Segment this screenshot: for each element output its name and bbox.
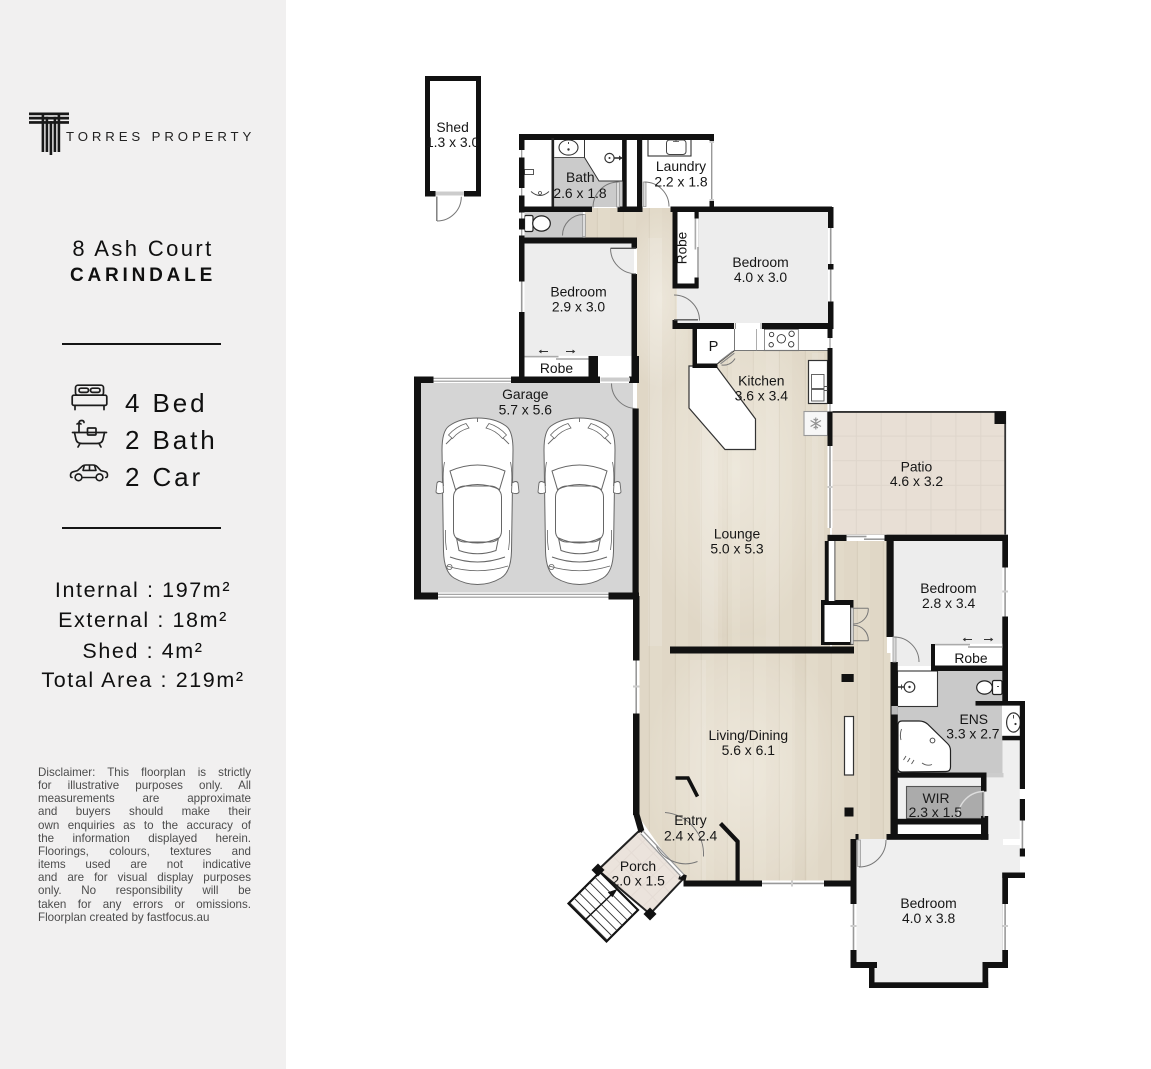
svg-text:Laundry: Laundry — [656, 158, 706, 174]
svg-text:Bedroom: Bedroom — [732, 254, 788, 270]
svg-text:Bedroom: Bedroom — [920, 580, 976, 596]
svg-text:P: P — [709, 339, 719, 355]
svg-text:2.4 x 2.4: 2.4 x 2.4 — [664, 827, 718, 843]
svg-text:Living/Dining: Living/Dining — [709, 727, 789, 743]
svg-text:Shed: Shed — [436, 119, 468, 135]
svg-text:5.7 x 5.6: 5.7 x 5.6 — [499, 402, 553, 418]
svg-text:4.0 x 3.0: 4.0 x 3.0 — [734, 269, 788, 285]
svg-text:2.2 x 1.8: 2.2 x 1.8 — [654, 174, 708, 190]
svg-text:1.3 x 3.0: 1.3 x 3.0 — [426, 134, 480, 150]
svg-text:2.3 x 1.5: 2.3 x 1.5 — [909, 804, 963, 820]
svg-text:3.6 x 3.4: 3.6 x 3.4 — [735, 387, 789, 403]
svg-text:Robe: Robe — [540, 360, 573, 376]
svg-text:5.0 x 5.3: 5.0 x 5.3 — [710, 541, 764, 557]
svg-text:4.6 x 3.2: 4.6 x 3.2 — [890, 473, 944, 489]
svg-text:Patio: Patio — [901, 458, 933, 474]
svg-text:2.9 x 3.0: 2.9 x 3.0 — [552, 299, 606, 315]
svg-text:5.6 x 6.1: 5.6 x 6.1 — [722, 742, 776, 758]
svg-text:Garage: Garage — [502, 386, 549, 402]
svg-text:Robe: Robe — [675, 232, 690, 265]
svg-text:Bedroom: Bedroom — [900, 895, 956, 911]
svg-text:Robe: Robe — [954, 650, 987, 666]
svg-text:Lounge: Lounge — [714, 526, 761, 542]
svg-text:2.0 x 1.5: 2.0 x 1.5 — [612, 873, 666, 889]
svg-text:Entry: Entry — [674, 812, 706, 828]
svg-text:Kitchen: Kitchen — [738, 372, 784, 388]
svg-text:Bath: Bath — [566, 169, 595, 185]
svg-text:4.0 x 3.8: 4.0 x 3.8 — [902, 910, 956, 926]
svg-text:Bedroom: Bedroom — [550, 284, 606, 300]
svg-text:2.6 x 1.8: 2.6 x 1.8 — [553, 185, 607, 201]
svg-text:Porch: Porch — [620, 858, 656, 874]
svg-text:3.3 x 2.7: 3.3 x 2.7 — [946, 725, 1000, 741]
svg-text:2.8 x 3.4: 2.8 x 3.4 — [922, 595, 976, 611]
